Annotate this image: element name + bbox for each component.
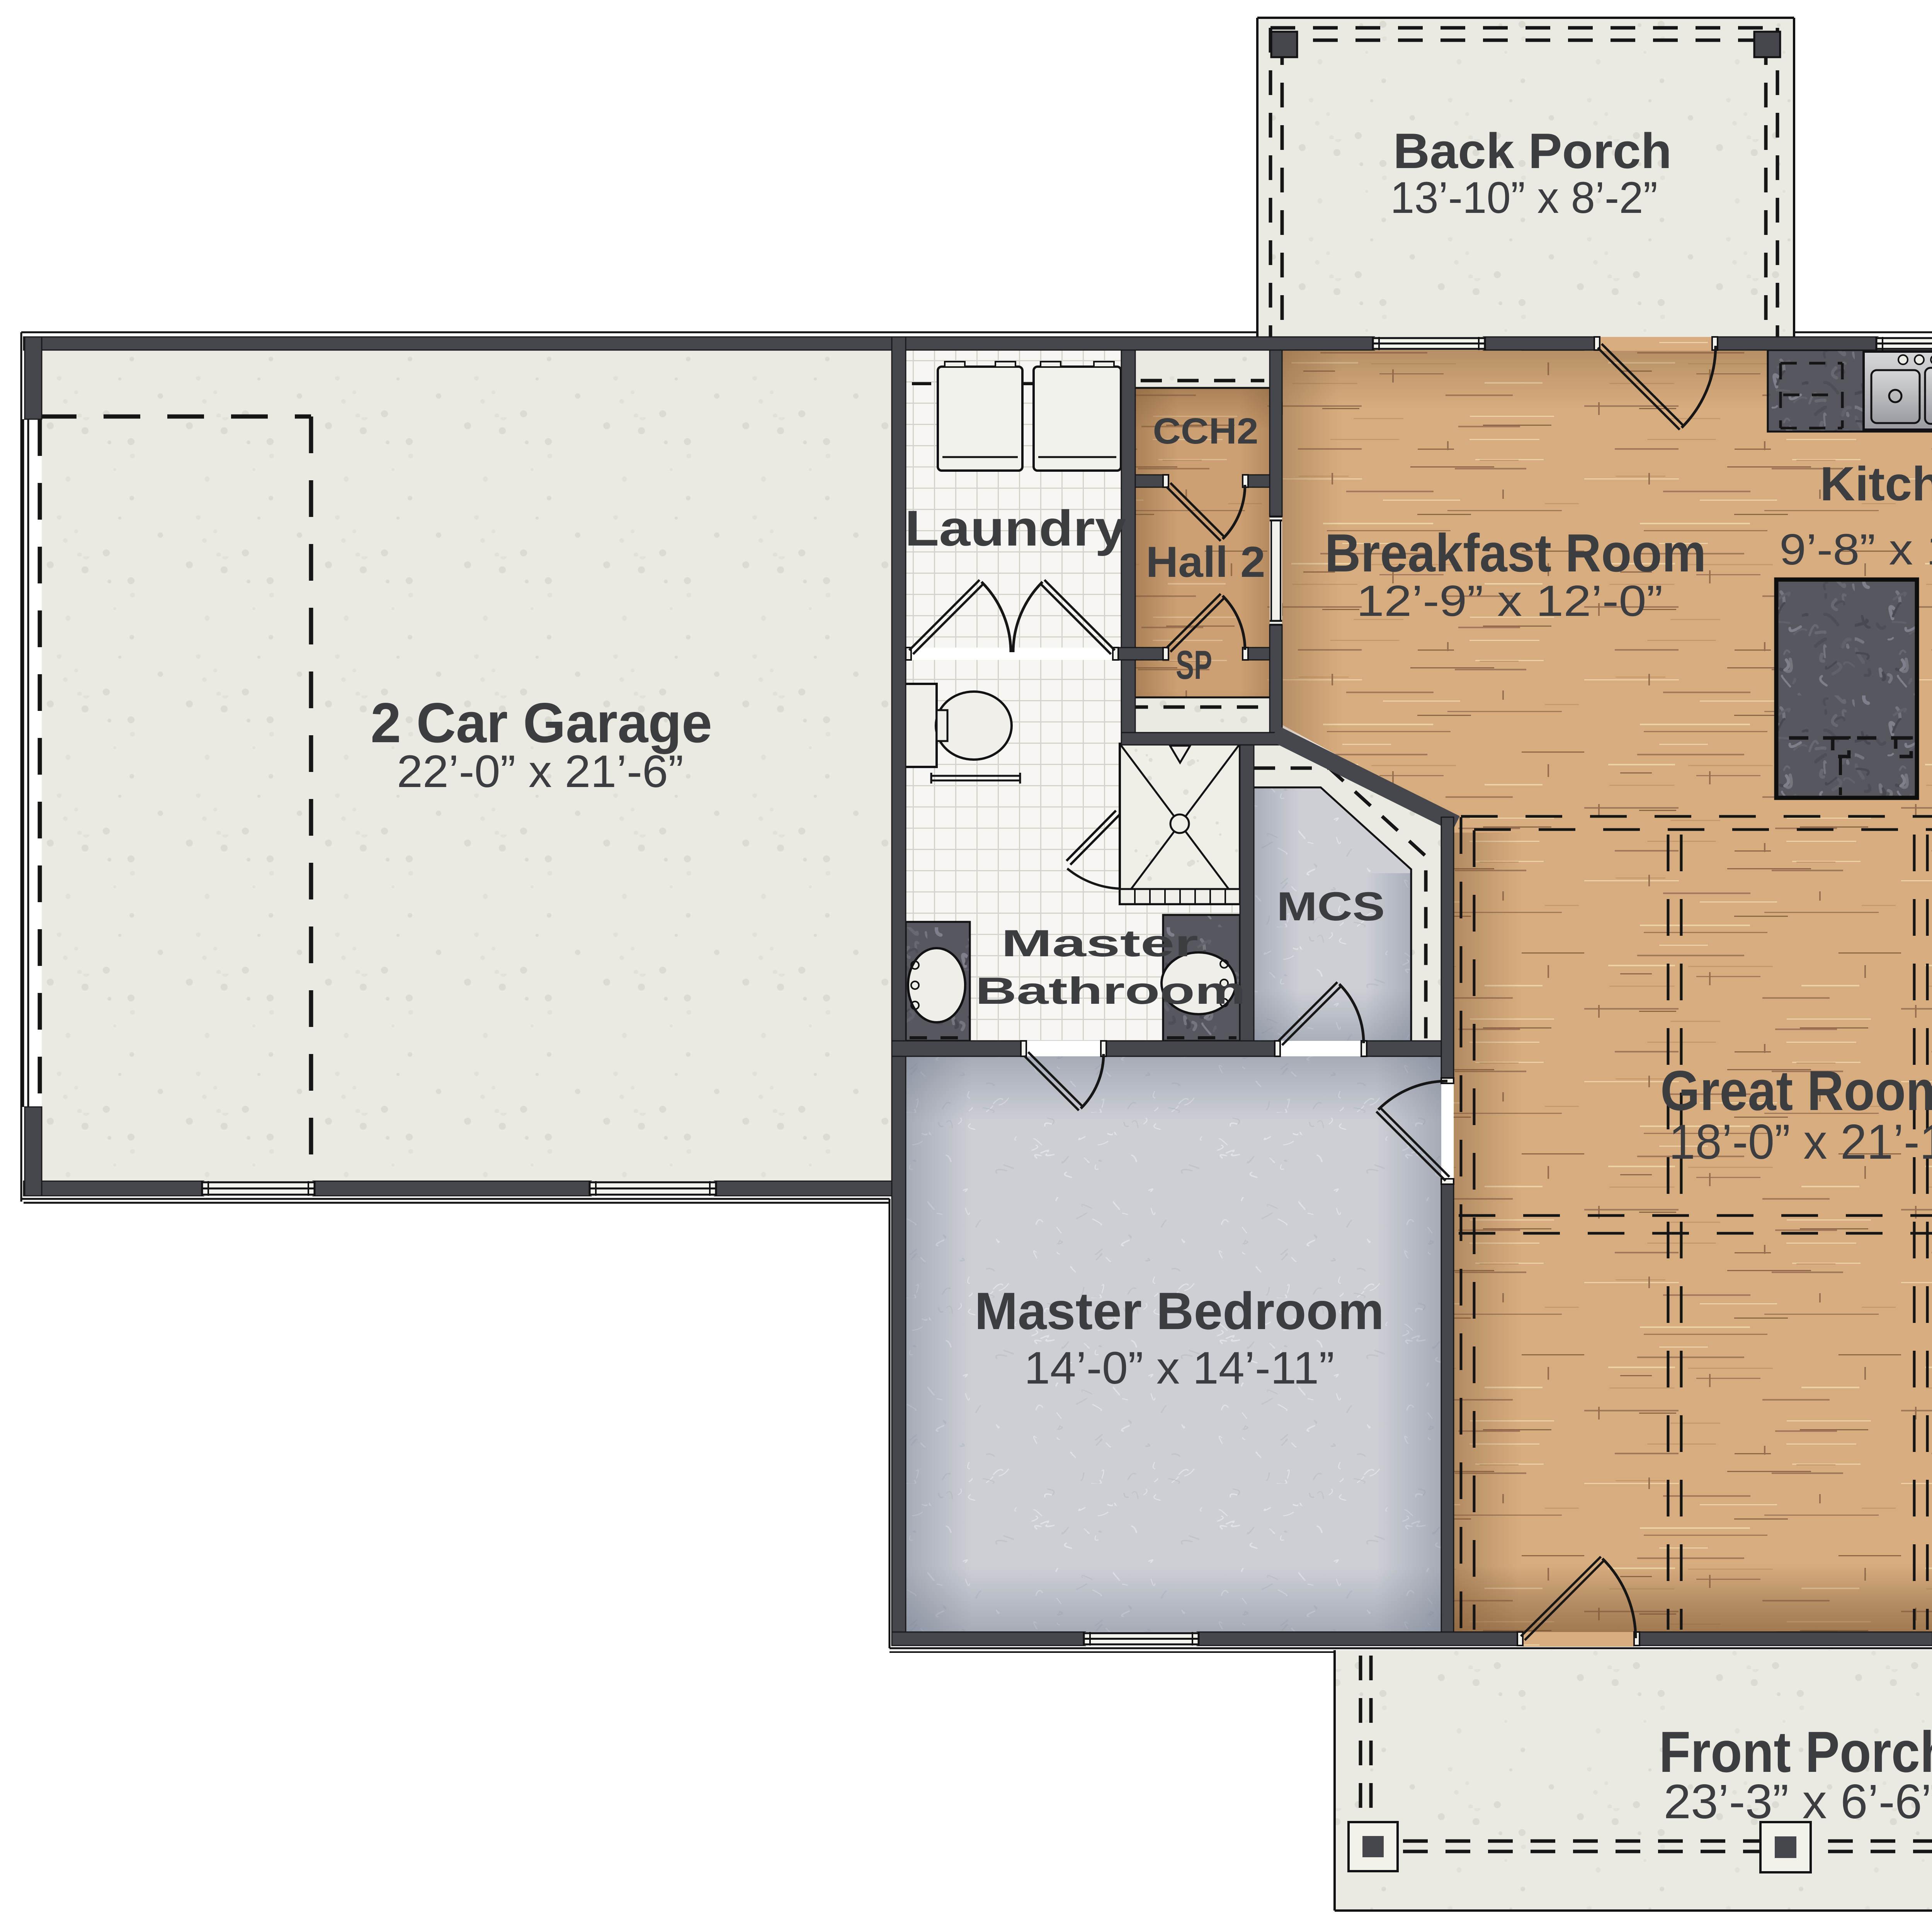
svg-text:Hall 2: Hall 2 bbox=[1146, 538, 1265, 586]
svg-text:12’-9” x 12’-0”: 12’-9” x 12’-0” bbox=[1357, 576, 1663, 625]
svg-text:CCH2: CCH2 bbox=[1153, 411, 1259, 452]
svg-text:23’-3” x 6’-6”: 23’-3” x 6’-6” bbox=[1664, 1775, 1932, 1829]
svg-text:SP: SP bbox=[1176, 643, 1212, 688]
svg-text:MCS: MCS bbox=[1277, 884, 1385, 929]
svg-text:2 Car Garage: 2 Car Garage bbox=[371, 691, 712, 754]
svg-text:14’-0” x 14’-11”: 14’-0” x 14’-11” bbox=[1024, 1343, 1335, 1394]
svg-text:Breakfast Room: Breakfast Room bbox=[1325, 523, 1706, 583]
svg-text:Bathroom: Bathroom bbox=[975, 969, 1246, 1012]
svg-text:22’-0” x 21’-6”: 22’-0” x 21’-6” bbox=[397, 746, 684, 797]
svg-text:13’-10” x 8’-2”: 13’-10” x 8’-2” bbox=[1390, 173, 1658, 223]
svg-text:Master: Master bbox=[1001, 922, 1198, 964]
svg-text:9’-8” x 12’-0”: 9’-8” x 12’-0” bbox=[1779, 525, 1932, 574]
svg-text:Laundry: Laundry bbox=[905, 500, 1126, 556]
svg-text:18’-0” x 21’-1”: 18’-0” x 21’-1” bbox=[1669, 1114, 1932, 1169]
svg-text:Master Bedroom: Master Bedroom bbox=[975, 1282, 1384, 1340]
svg-text:Back Porch: Back Porch bbox=[1393, 123, 1672, 179]
svg-text:Front Porch: Front Porch bbox=[1659, 1719, 1932, 1784]
svg-text:Kitchen: Kitchen bbox=[1820, 457, 1932, 511]
svg-text:Great Room: Great Room bbox=[1660, 1059, 1932, 1122]
